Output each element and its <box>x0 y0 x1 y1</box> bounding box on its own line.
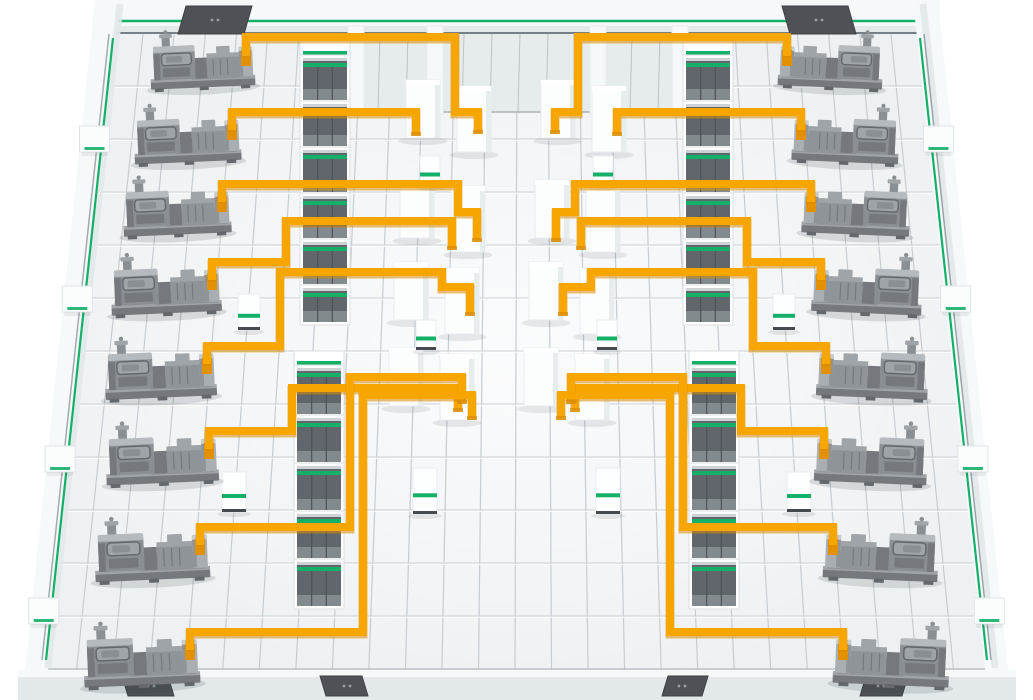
scene-svg <box>0 0 1033 700</box>
switchgear-cabinet <box>294 511 344 561</box>
switchgear-cabinet <box>300 239 350 287</box>
switchgear-cabinet <box>683 239 733 287</box>
distribution-pedestal <box>408 468 442 519</box>
switchgear-cabinet <box>300 55 350 103</box>
distribution-pedestal <box>412 320 440 355</box>
switchgear-cabinet <box>689 415 739 465</box>
switchgear-cabinet <box>689 511 739 561</box>
switchgear-cabinet <box>294 415 344 465</box>
distribution-pedestal <box>782 472 816 517</box>
distribution-pedestal <box>769 294 800 335</box>
switchgear-cabinet <box>683 285 733 325</box>
switchgear-cabinet <box>300 285 350 325</box>
switchgear-cabinet <box>294 559 344 609</box>
switchgear-cabinet <box>294 463 344 513</box>
switchgear-cabinet <box>689 559 739 609</box>
door-panel <box>178 6 252 34</box>
busway-column <box>585 86 634 159</box>
switchgear-cabinet <box>683 55 733 103</box>
distribution-pedestal <box>593 320 621 355</box>
distribution-pedestal <box>234 294 265 335</box>
distribution-pedestal <box>591 468 625 519</box>
door-panel <box>782 6 856 34</box>
switchgear-cabinet <box>689 463 739 513</box>
riser-wall-face <box>352 33 688 112</box>
distribution-pedestal <box>217 472 251 517</box>
facility-illustration <box>0 0 1033 700</box>
